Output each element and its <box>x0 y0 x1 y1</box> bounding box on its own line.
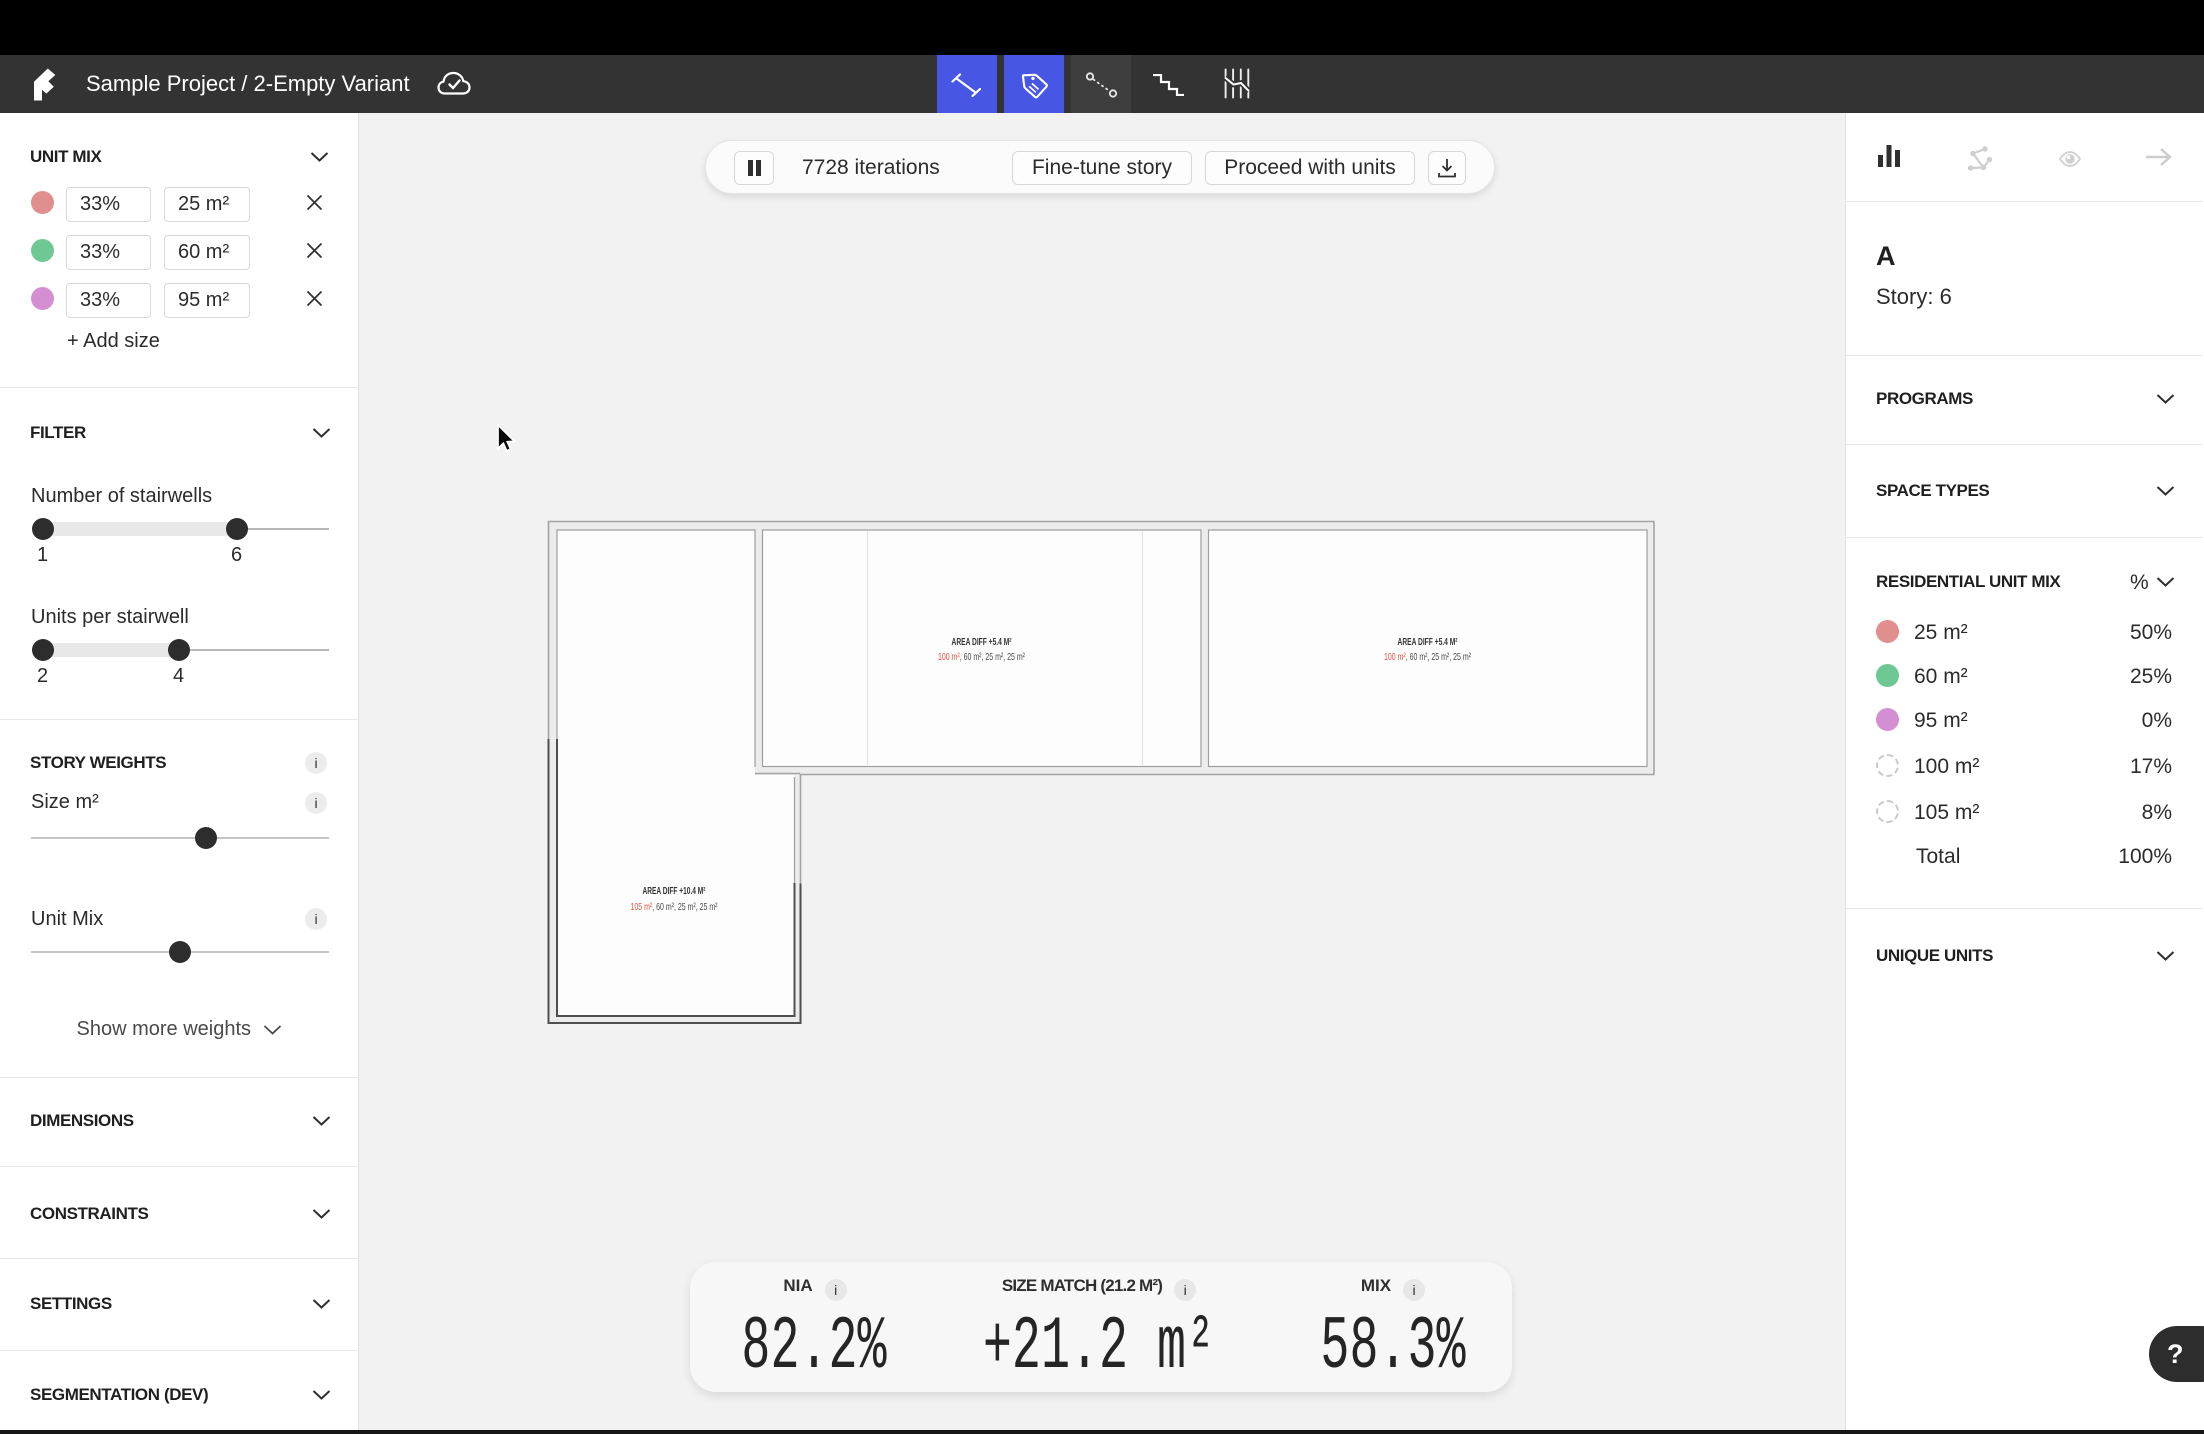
svg-text:100 m², 60 m², 25 m², 25 m²: 100 m², 60 m², 25 m², 25 m² <box>1384 651 1471 663</box>
svg-text:AREA DIFF +5.4 M²: AREA DIFF +5.4 M² <box>952 636 1012 648</box>
svg-text:100 m², 60 m², 25 m², 25 m²: 100 m², 60 m², 25 m², 25 m² <box>938 651 1025 663</box>
svg-text:AREA DIFF +5.4 M²: AREA DIFF +5.4 M² <box>1398 636 1458 648</box>
svg-text:105 m², 60 m², 25 m², 25 m²: 105 m², 60 m², 25 m², 25 m² <box>631 901 718 913</box>
svg-text:AREA DIFF +10.4 M²: AREA DIFF +10.4 M² <box>643 885 706 897</box>
